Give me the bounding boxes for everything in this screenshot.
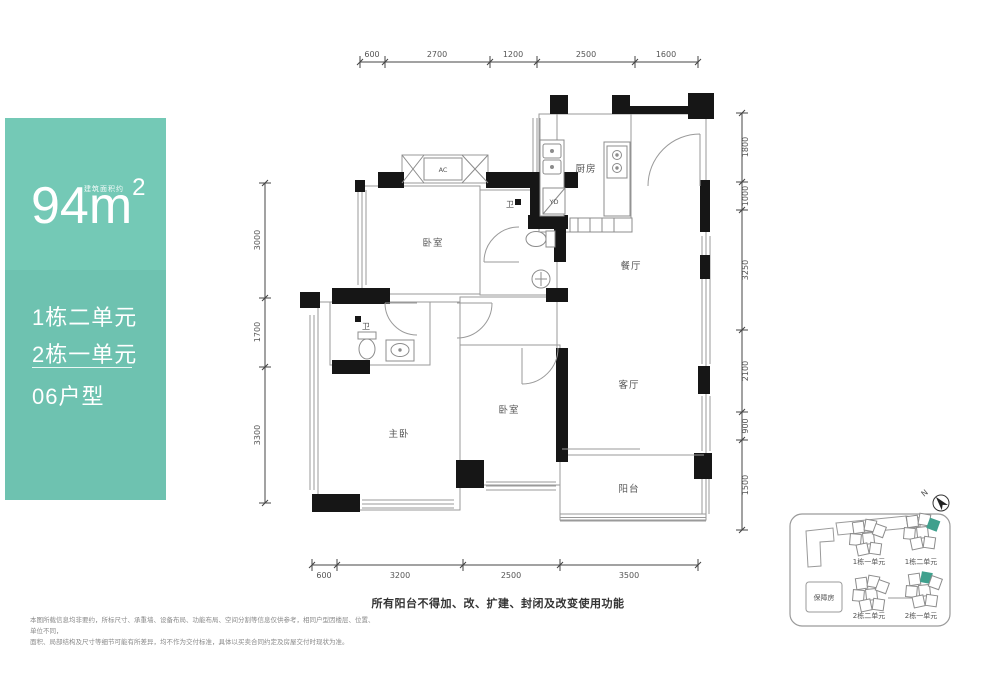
wall-bedroom2-living bbox=[556, 348, 568, 462]
area-superscript: 2 bbox=[132, 174, 145, 201]
dim-left-2: 1700 bbox=[253, 322, 262, 342]
bath-lower-toilet bbox=[358, 332, 376, 359]
disclaimer-line-1: 本图所载信息均非要约，所标尺寸、承重墙、设备布局、功能布局、空间分割等信息仅供参… bbox=[30, 615, 375, 637]
dim-top-3: 1200 bbox=[503, 50, 523, 59]
area-value: 94m2 bbox=[31, 176, 146, 232]
wall-top-step bbox=[628, 106, 690, 114]
dim-bottom-1: 600 bbox=[316, 571, 331, 580]
disclaimer: 本图所载信息均非要约，所标尺寸、承重墙、设备布局、功能布局、空间分割等信息仅供参… bbox=[30, 615, 375, 648]
room-labels: 卧室 卫 厨房 YD AC 餐厅 客厅 卧室 主卧 卫 阳台 bbox=[362, 163, 642, 495]
panel-divider bbox=[32, 367, 132, 368]
wall-right-lower bbox=[698, 366, 710, 394]
label-balcony: 阳台 bbox=[618, 483, 639, 495]
master-outline bbox=[318, 302, 460, 510]
label-master: 主卧 bbox=[388, 428, 409, 440]
label-block2-unit2: 2栋二单元 bbox=[853, 611, 885, 620]
dim-left-1: 3000 bbox=[253, 230, 262, 250]
label-ac: AC bbox=[439, 166, 448, 174]
label-bath-lower: 卫 bbox=[362, 322, 370, 331]
label-bedroom1: 卧室 bbox=[422, 237, 443, 249]
window-bedroom1-left bbox=[358, 190, 366, 285]
wall-master-bottom-block bbox=[456, 460, 484, 488]
dim-right-1: 1800 bbox=[741, 137, 750, 157]
label-block2-unit1: 2栋一单元 bbox=[905, 611, 937, 620]
window-living-right bbox=[702, 396, 710, 451]
balcony-sliding-door bbox=[562, 449, 704, 455]
dim-top-1: 600 bbox=[364, 50, 379, 59]
dim-right-2: 1000 bbox=[741, 186, 750, 206]
bath-upper-toilet bbox=[526, 231, 555, 247]
area-info-panel: 建筑面积约 94m2 1栋二单元 2栋一单元 06户型 bbox=[5, 118, 166, 500]
wall-right-mid bbox=[700, 255, 710, 279]
dim-right-3: 3250 bbox=[741, 260, 750, 280]
wall-top-stub-left bbox=[550, 95, 568, 114]
unit-line-1: 1栋二单元 bbox=[32, 300, 137, 332]
window-master-bottom bbox=[362, 500, 454, 508]
bath-lower-outline bbox=[330, 302, 430, 365]
dim-bottom-3: 2500 bbox=[501, 571, 521, 580]
wall-hall-dining bbox=[546, 288, 568, 302]
hall-outline bbox=[460, 297, 557, 345]
dim-right-5: 900 bbox=[741, 418, 750, 433]
label-kitchen: 厨房 bbox=[575, 163, 596, 175]
label-yd: YD bbox=[549, 198, 559, 206]
structural-walls bbox=[300, 93, 714, 512]
area-number: 94 bbox=[31, 177, 89, 235]
label-block1-unit1: 1栋一单元 bbox=[853, 557, 885, 566]
bedroom2-door-arc bbox=[522, 348, 558, 384]
kitchen-cabinet bbox=[570, 218, 632, 232]
label-bedroom2: 卧室 bbox=[498, 404, 519, 416]
bath-upper-basin bbox=[532, 270, 550, 288]
wall-bedroom1-corner bbox=[355, 180, 365, 192]
bath-lower-door-arc bbox=[385, 303, 417, 335]
area-unit: m bbox=[89, 177, 132, 235]
wall-dot-upper bbox=[515, 199, 521, 205]
window-master-left bbox=[310, 315, 318, 490]
dim-right-4: 2100 bbox=[741, 361, 750, 381]
wall-dot-lower bbox=[355, 316, 361, 322]
window-bedroom2-south bbox=[486, 482, 556, 490]
kitchen-stove bbox=[607, 146, 627, 178]
wall-step-left bbox=[332, 288, 390, 304]
bedroom1-outline bbox=[362, 186, 480, 294]
dim-top-2: 2700 bbox=[427, 50, 447, 59]
dim-bottom-2: 3200 bbox=[390, 571, 410, 580]
wall-bath-lower-bottom bbox=[332, 360, 370, 374]
label-bath-upper: 卫 bbox=[506, 200, 514, 209]
label-block1-unit2: 1栋二单元 bbox=[905, 557, 937, 566]
label-dining: 餐厅 bbox=[620, 260, 641, 272]
bath-upper-door-arc bbox=[484, 227, 519, 262]
wall-balcony-corner bbox=[694, 453, 712, 479]
floorplan-page: 建筑面积约 94m2 1栋二单元 2栋一单元 06户型 bbox=[0, 0, 1000, 673]
wall-right-upper bbox=[700, 180, 710, 232]
wall-top-right-corner bbox=[688, 93, 714, 119]
north-arrow: N bbox=[920, 488, 949, 511]
site-map: N bbox=[790, 488, 950, 626]
wall-bedroom1-top-left bbox=[378, 172, 404, 188]
disclaimer-line-2: 面积、局部结构及尺寸等细节可能有所差异，均不作为交付标准，具体以买卖合同约定及房… bbox=[30, 637, 375, 648]
bath-lower-basin bbox=[386, 340, 414, 361]
label-support-housing: 保障房 bbox=[814, 593, 835, 602]
wall-top-stub-mid bbox=[612, 95, 630, 114]
dimension-lines bbox=[259, 56, 748, 571]
wall-step-corner bbox=[300, 292, 320, 308]
dim-bottom-4: 3500 bbox=[619, 571, 639, 580]
wall-master-bottom-corner bbox=[312, 494, 360, 512]
entry-door-arc bbox=[648, 134, 700, 186]
master-door-arc bbox=[457, 303, 492, 338]
balcony-notice: 所有阳台不得加、改、扩建、封闭及改变使用功能 bbox=[328, 595, 668, 611]
dim-top-5: 1600 bbox=[656, 50, 676, 59]
dim-top-4: 2500 bbox=[576, 50, 596, 59]
house-type-label: 06户型 bbox=[32, 379, 104, 411]
unit-line-2: 2栋一单元 bbox=[32, 337, 137, 369]
balcony-railing-right bbox=[702, 479, 709, 514]
label-living: 客厅 bbox=[618, 379, 639, 391]
wall-bath-dining bbox=[554, 222, 566, 262]
dim-left-3: 3300 bbox=[253, 425, 262, 445]
dim-right-6: 1500 bbox=[741, 475, 750, 495]
north-label: N bbox=[920, 488, 930, 499]
